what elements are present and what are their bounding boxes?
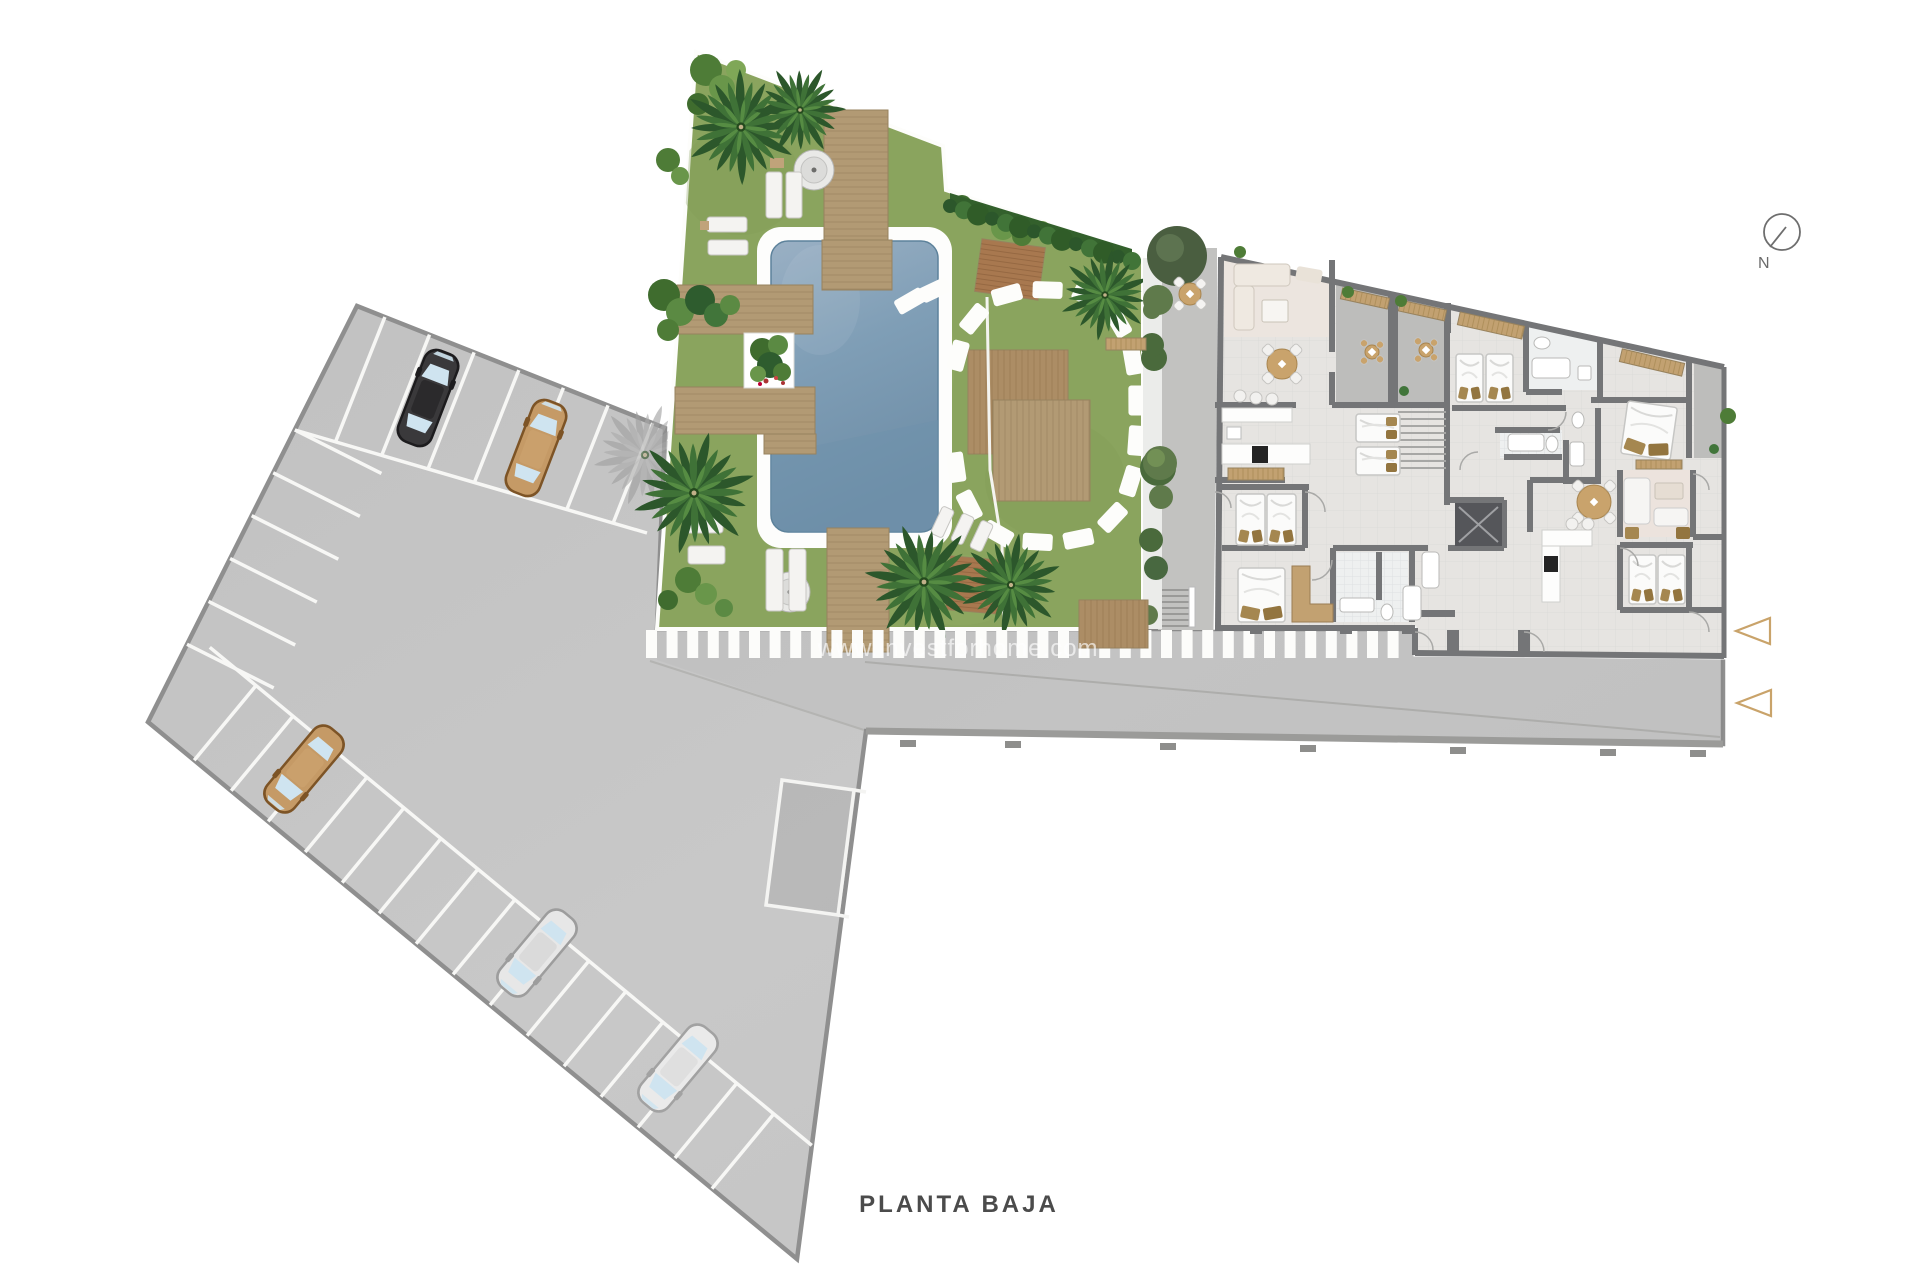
svg-text:N: N [1758, 255, 1770, 272]
svg-text:www.investforhome.com: www.investforhome.com [816, 635, 1098, 662]
svg-text:PLANTA BAJA: PLANTA BAJA [859, 1191, 1059, 1218]
